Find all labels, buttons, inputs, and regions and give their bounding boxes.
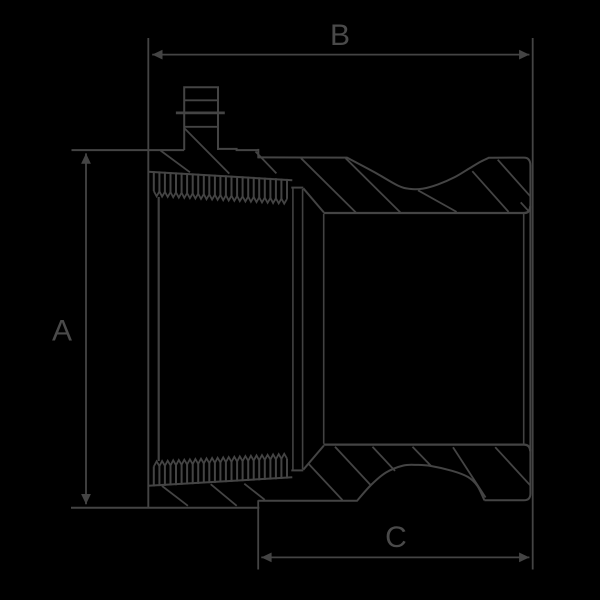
svg-text:A: A <box>52 315 72 348</box>
svg-text:C: C <box>385 521 407 554</box>
svg-text:B: B <box>330 19 350 52</box>
